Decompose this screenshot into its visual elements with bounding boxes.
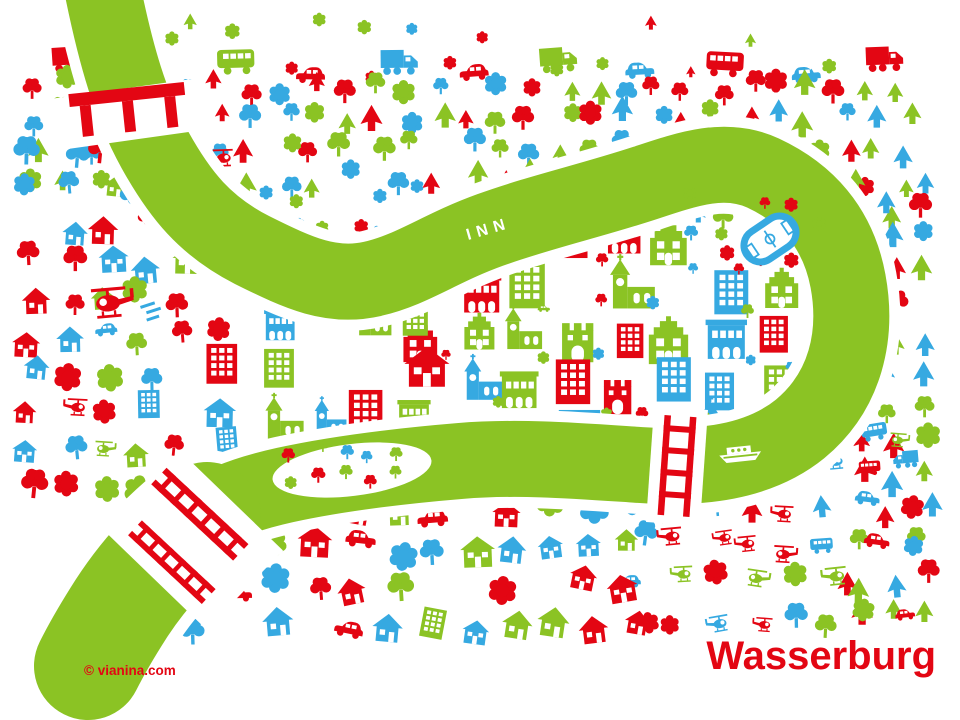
- fir-tree-icon: [745, 33, 756, 46]
- flower-icon: [488, 575, 517, 606]
- flower-icon: [715, 227, 727, 240]
- tree-icon: [909, 193, 932, 218]
- tree-icon: [63, 246, 87, 272]
- tree-icon: [485, 112, 506, 134]
- two-story-house-icon: [98, 245, 129, 273]
- tree-icon: [400, 131, 417, 150]
- two-story-house-icon: [536, 534, 564, 560]
- tree-icon: [239, 104, 261, 128]
- helicopter-icon: [656, 526, 682, 546]
- house-icon: [123, 443, 150, 468]
- tree-icon: [283, 103, 299, 121]
- flower-icon: [564, 103, 581, 122]
- tree-icon: [688, 263, 698, 274]
- tree-icon: [126, 332, 148, 355]
- tree-icon: [918, 559, 940, 583]
- flower-icon: [313, 13, 326, 27]
- map-title: Wasserburg: [706, 634, 936, 678]
- tree-icon: [642, 77, 659, 95]
- fir-tree-icon: [360, 105, 382, 131]
- flower-icon: [286, 62, 298, 75]
- helicopter-icon: [670, 566, 693, 583]
- tree-icon: [16, 240, 40, 266]
- two-story-house-icon: [567, 563, 599, 592]
- map-illustration: INN Wasserburg © vianina.com: [0, 0, 960, 720]
- tree-icon: [822, 79, 845, 103]
- flower-icon: [746, 355, 756, 365]
- tree-icon: [242, 84, 262, 106]
- flower-icon: [260, 185, 273, 199]
- tree-icon: [373, 137, 396, 161]
- bus-icon: [217, 49, 255, 75]
- tree-icon: [171, 320, 193, 343]
- car-icon: [459, 63, 489, 81]
- tree-icon: [141, 368, 163, 391]
- tree-icon: [633, 519, 659, 547]
- apartment-block-icon: [657, 357, 691, 401]
- house-icon: [577, 614, 610, 645]
- fir-tree-icon: [612, 96, 633, 121]
- helicopter-icon: [770, 505, 794, 523]
- flower-icon: [524, 78, 541, 96]
- arcade-building-icon: [500, 371, 539, 408]
- apartment-block-icon: [556, 359, 590, 404]
- tree-icon: [512, 106, 534, 130]
- flower-icon: [444, 56, 457, 70]
- gabled-townhouse-icon: [765, 268, 798, 308]
- flower-icon: [392, 80, 414, 104]
- car-icon: [333, 619, 365, 641]
- helicopter-icon: [733, 535, 757, 553]
- fir-tree-icon: [304, 179, 320, 198]
- tree-icon: [419, 539, 444, 566]
- tree-icon: [464, 128, 486, 152]
- apartment-block-icon: [617, 324, 644, 358]
- fir-tree-icon: [893, 145, 912, 168]
- apartment-block-icon: [264, 349, 294, 388]
- house-icon: [335, 576, 368, 607]
- map-canvas: INN Wasserburg © vianina.com: [0, 0, 960, 720]
- fir-tree-icon: [916, 461, 933, 481]
- flower-icon: [900, 493, 926, 520]
- tree-icon: [839, 103, 855, 120]
- house-icon: [88, 216, 119, 245]
- gabled-townhouse-icon: [464, 313, 494, 350]
- flower-icon: [661, 615, 679, 635]
- flower-icon: [411, 179, 424, 193]
- car-icon: [625, 62, 655, 80]
- fir-tree-icon: [867, 105, 886, 128]
- tree-icon: [65, 294, 84, 315]
- flower-icon: [579, 101, 601, 125]
- two-story-house-icon: [575, 533, 601, 557]
- tree-icon: [327, 132, 350, 156]
- fir-tree-icon: [876, 506, 895, 528]
- fir-tree-icon: [886, 574, 907, 598]
- fir-tree-icon: [887, 83, 903, 102]
- tree-icon: [741, 304, 754, 318]
- flower-icon: [765, 69, 787, 93]
- tree-icon: [282, 177, 302, 198]
- two-story-house-icon: [12, 332, 41, 358]
- flower-icon: [783, 561, 806, 586]
- apartment-block-icon: [760, 316, 788, 353]
- flower-icon: [358, 20, 371, 34]
- flower-icon: [916, 422, 940, 448]
- bus-icon: [810, 538, 834, 555]
- church-icon: [464, 354, 502, 400]
- fir-tree-icon: [458, 110, 474, 128]
- fir-tree-icon: [645, 16, 657, 30]
- helicopter-icon: [95, 441, 117, 457]
- tree-icon: [20, 468, 50, 500]
- two-story-house-icon: [461, 619, 491, 646]
- tree-icon: [616, 82, 637, 105]
- tree-icon: [387, 572, 415, 602]
- two-story-house-icon: [460, 536, 496, 568]
- fir-tree-icon: [233, 139, 253, 163]
- flower-icon: [96, 363, 124, 393]
- flower-icon: [656, 106, 673, 124]
- flower-icon: [702, 558, 729, 587]
- helicopter-icon: [745, 568, 771, 588]
- car-icon: [854, 490, 880, 507]
- church-icon: [265, 393, 303, 439]
- truck-icon: [539, 46, 578, 74]
- fir-tree-icon: [862, 138, 879, 159]
- gabled-townhouse-icon: [649, 316, 688, 364]
- flower-icon: [822, 59, 836, 74]
- house-icon: [21, 287, 50, 314]
- house-icon: [56, 326, 84, 352]
- tree-icon: [441, 350, 450, 360]
- bus-icon: [859, 460, 881, 476]
- flower-icon: [406, 23, 417, 35]
- tree-icon: [309, 577, 332, 601]
- tree-icon: [366, 72, 386, 93]
- church-icon: [505, 304, 542, 349]
- flower-icon: [225, 23, 239, 39]
- bus-icon: [706, 51, 744, 78]
- house-icon: [535, 605, 571, 639]
- helicopter-icon: [773, 545, 798, 564]
- flower-icon: [92, 399, 116, 425]
- flower-icon: [95, 476, 120, 503]
- house-icon: [371, 613, 404, 644]
- tree-icon: [433, 78, 448, 94]
- truck-icon: [866, 46, 904, 72]
- helicopter-icon: [820, 566, 848, 587]
- flower-icon: [596, 57, 608, 70]
- two-story-house-icon: [11, 439, 37, 463]
- car-icon: [95, 323, 118, 337]
- flower-icon: [269, 83, 289, 105]
- fir-tree-icon: [917, 173, 934, 194]
- tree-icon: [24, 116, 43, 136]
- tree-icon: [915, 396, 935, 417]
- fir-tree-icon: [435, 102, 456, 127]
- flower-icon: [54, 470, 78, 496]
- flower-icon: [373, 189, 386, 203]
- tree-icon: [596, 253, 608, 266]
- helicopter-icon: [752, 617, 773, 633]
- tree-icon: [23, 78, 42, 98]
- flower-icon: [402, 112, 422, 134]
- fir-tree-icon: [881, 471, 903, 497]
- flower-icon: [305, 102, 324, 123]
- fir-tree-icon: [857, 81, 873, 100]
- gate-tower-icon: [562, 323, 593, 362]
- flower-icon: [720, 245, 734, 260]
- credit-text: © vianina.com: [84, 663, 176, 678]
- flower-icon: [206, 316, 230, 342]
- tree-icon: [388, 172, 410, 195]
- house-icon: [23, 354, 51, 380]
- tree-icon: [715, 85, 734, 105]
- helicopter-icon: [705, 614, 730, 634]
- car-icon: [345, 529, 377, 549]
- flower-icon: [914, 221, 932, 241]
- fir-tree-icon: [686, 66, 695, 77]
- flower-icon: [284, 133, 302, 152]
- flower-icon: [477, 31, 488, 43]
- fir-tree-icon: [422, 173, 440, 194]
- two-story-house-icon: [203, 398, 236, 428]
- tree-icon: [878, 404, 896, 423]
- fir-tree-icon: [903, 102, 921, 123]
- flower-icon: [485, 72, 506, 95]
- fir-tree-icon: [769, 99, 788, 121]
- fir-tree-icon: [592, 81, 612, 104]
- car-icon: [538, 305, 550, 312]
- car-icon: [863, 532, 890, 550]
- fir-tree-icon: [791, 111, 813, 137]
- fir-tree-icon: [916, 333, 935, 356]
- fir-tree-icon: [915, 601, 933, 622]
- tree-icon: [784, 603, 808, 628]
- tree-icon: [746, 70, 766, 92]
- flower-icon: [388, 540, 419, 573]
- house-icon: [500, 608, 534, 640]
- tree-icon: [595, 294, 607, 307]
- tree-icon: [298, 142, 317, 162]
- tree-icon: [492, 139, 509, 157]
- flower-icon: [702, 99, 719, 117]
- flower-icon: [342, 159, 360, 178]
- tree-icon: [334, 79, 356, 103]
- tree-icon: [165, 293, 188, 318]
- fir-tree-icon: [913, 361, 934, 386]
- fir-tree-icon: [184, 14, 197, 30]
- bridge-gap: [646, 406, 708, 525]
- house-icon: [261, 606, 294, 637]
- flower-icon: [593, 348, 604, 360]
- fir-tree-icon: [338, 113, 355, 134]
- fir-tree-icon: [564, 82, 580, 101]
- fir-tree-icon: [911, 255, 932, 280]
- apartment-block-icon: [419, 606, 447, 639]
- house-icon: [62, 221, 89, 246]
- fir-tree-icon: [811, 494, 832, 518]
- fir-tree-icon: [205, 69, 221, 88]
- tree-icon: [671, 83, 688, 101]
- helicopter-motion-lines: [140, 300, 163, 322]
- flower-icon: [54, 362, 82, 392]
- fir-tree-icon: [922, 492, 943, 516]
- helicopter-icon: [63, 398, 88, 416]
- apartment-block-icon: [206, 344, 237, 384]
- flower-icon: [538, 351, 549, 363]
- flower-icon: [93, 170, 110, 188]
- house-icon: [496, 535, 528, 565]
- house-icon: [12, 401, 37, 424]
- apartment-block-icon: [138, 390, 160, 418]
- arcade-building-icon: [706, 320, 747, 359]
- fir-tree-icon: [842, 140, 861, 162]
- helicopter-icon: [711, 529, 733, 546]
- truck-icon: [381, 50, 418, 75]
- fir-tree-icon: [215, 104, 230, 121]
- flower-icon: [165, 31, 178, 45]
- fir-tree-icon: [899, 180, 914, 197]
- tree-icon: [64, 435, 88, 461]
